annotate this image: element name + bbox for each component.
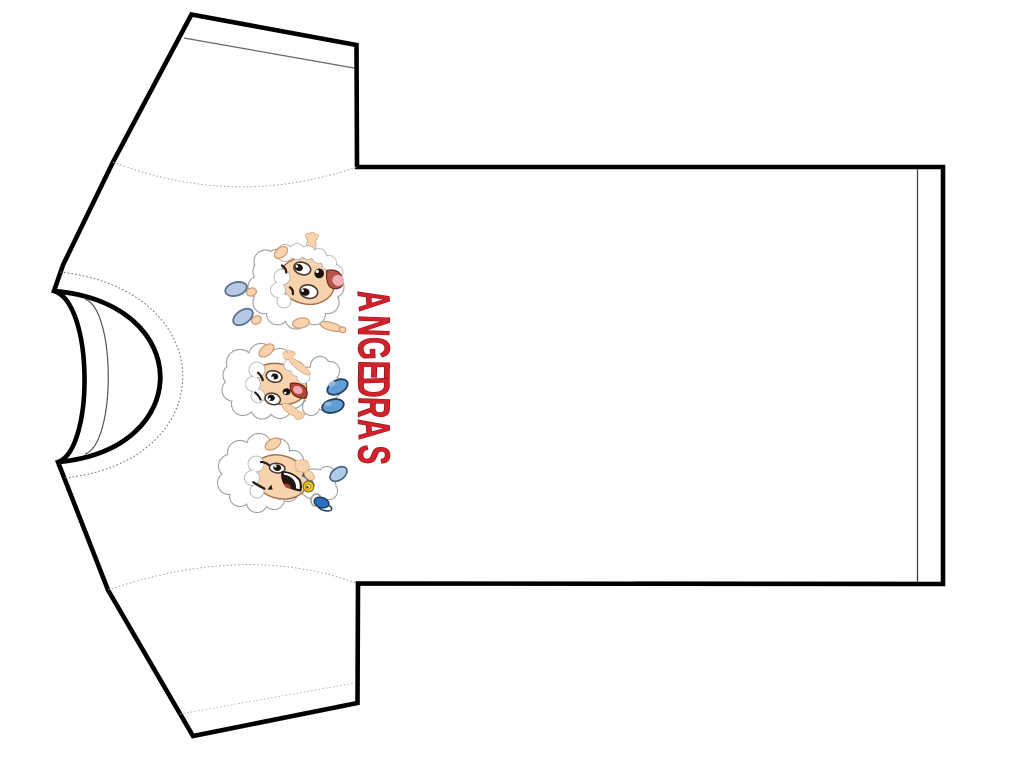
svg-text:A: A bbox=[347, 417, 398, 441]
svg-text:N: N bbox=[347, 314, 398, 337]
svg-text:R: R bbox=[347, 396, 398, 419]
svg-text:A: A bbox=[347, 288, 398, 313]
svg-text:S: S bbox=[347, 444, 398, 466]
svg-text:E: E bbox=[348, 360, 398, 380]
svg-text:G: G bbox=[347, 336, 398, 360]
